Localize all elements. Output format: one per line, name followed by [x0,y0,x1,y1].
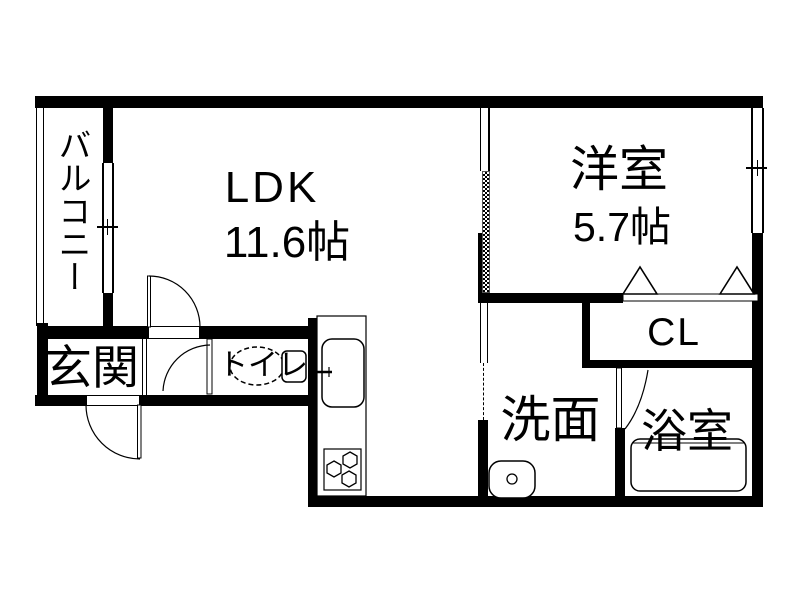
closet-folding-doors [623,267,758,301]
balcony-label: バルコニー [56,128,89,293]
stove-icon [324,449,361,490]
fixtures-layer [0,0,800,600]
closet-label: CL [624,313,724,352]
western-room-label: 洋室 [539,146,699,195]
toilet-door [163,339,212,394]
bathroom-label: 浴室 [607,408,767,454]
ldk-door [148,276,201,327]
ldk-label: LDK [192,166,352,210]
floorplan: バルコニー LDK 11.6帖 洋室 5.7帖 CL 玄関 トイレ 洗面 浴室 [0,0,800,600]
toilet-label: トイレ [213,351,313,381]
entrance-door [86,405,141,459]
ldk-area-label: 11.6帖 [197,221,377,265]
washbasin-icon [489,461,535,498]
kitchen-counter [310,316,366,496]
western-room-area-label: 5.7帖 [542,207,702,248]
entrance-label: 玄関 [42,344,142,391]
